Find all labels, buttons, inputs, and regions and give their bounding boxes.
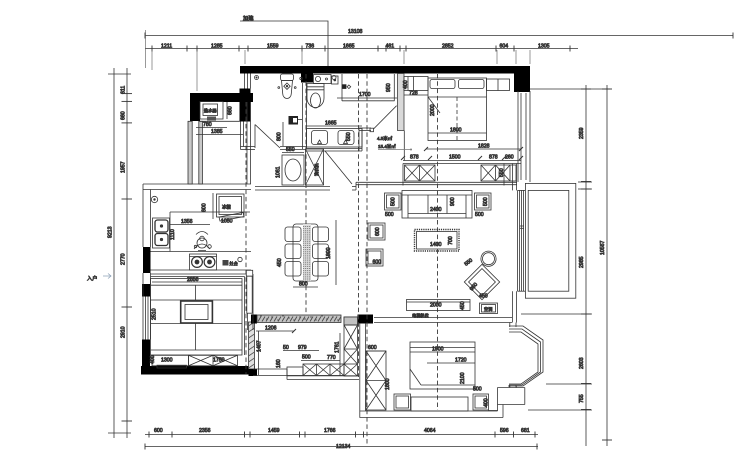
svg-text:1750: 1750 [213, 358, 225, 364]
svg-text:1500: 1500 [449, 155, 461, 161]
svg-text:洗衣机: 洗衣机 [313, 163, 320, 176]
svg-text:1800: 1800 [385, 378, 391, 390]
svg-text:2910: 2910 [121, 326, 127, 338]
svg-text:600: 600 [154, 428, 163, 434]
svg-text:1300: 1300 [161, 358, 173, 364]
svg-text:800: 800 [299, 282, 308, 288]
svg-text:2100: 2100 [460, 372, 466, 384]
svg-text:500: 500 [391, 197, 397, 206]
svg-text:1665: 1665 [343, 44, 355, 50]
svg-text:728: 728 [409, 91, 418, 97]
svg-text:700: 700 [448, 236, 454, 245]
svg-text:1400: 1400 [430, 242, 442, 248]
svg-text:冰箱: 冰箱 [222, 204, 231, 211]
svg-text:600: 600 [373, 260, 382, 266]
svg-text:1559: 1559 [267, 44, 279, 50]
svg-text:500: 500 [385, 212, 394, 218]
svg-text:1828: 1828 [478, 144, 490, 150]
svg-text:电视机位: 电视机位 [412, 312, 429, 319]
svg-text:500: 500 [302, 355, 311, 361]
svg-text:2000: 2000 [430, 104, 436, 116]
svg-text:2000: 2000 [430, 303, 442, 309]
svg-text:热水器: 热水器 [204, 107, 217, 114]
svg-text:2770: 2770 [121, 253, 127, 265]
svg-text:15.4米㎡: 15.4米㎡ [378, 143, 396, 150]
svg-text:800: 800 [277, 132, 283, 141]
svg-text:1957: 1957 [121, 161, 127, 173]
svg-text:1766: 1766 [324, 428, 336, 434]
svg-text:1800: 1800 [450, 128, 462, 134]
svg-text:736: 736 [306, 44, 315, 50]
svg-text:550: 550 [499, 168, 505, 177]
svg-text:1720: 1720 [455, 358, 467, 364]
svg-text:500: 500 [473, 387, 482, 393]
svg-text:灶台: 灶台 [230, 260, 238, 267]
svg-text:260: 260 [505, 155, 514, 161]
svg-text:600: 600 [368, 345, 377, 351]
svg-text:4.5米㎡: 4.5米㎡ [377, 135, 393, 142]
svg-text:770: 770 [327, 355, 336, 361]
svg-text:50: 50 [283, 345, 289, 351]
svg-text:1900: 1900 [432, 347, 444, 353]
svg-text:979: 979 [298, 345, 307, 351]
svg-text:600: 600 [375, 227, 381, 236]
svg-text:461: 461 [386, 44, 395, 50]
svg-text:450: 450 [479, 294, 488, 300]
svg-text:1459: 1459 [268, 428, 280, 434]
svg-text:1407: 1407 [257, 340, 263, 352]
svg-text:入户: 入户 [87, 274, 97, 282]
svg-text:611: 611 [121, 86, 127, 94]
svg-text:1356: 1356 [181, 219, 193, 225]
svg-text:4064: 4064 [424, 428, 436, 434]
svg-text:878: 878 [410, 155, 419, 161]
svg-text:10567: 10567 [600, 240, 606, 255]
svg-text:604: 604 [500, 44, 509, 50]
svg-text:1665: 1665 [325, 121, 337, 127]
svg-text:1305: 1305 [538, 44, 550, 50]
svg-text:1211: 1211 [161, 44, 172, 50]
svg-text:2356: 2356 [199, 428, 211, 434]
svg-text:1385: 1385 [211, 129, 223, 135]
svg-text:2400: 2400 [430, 207, 442, 213]
svg-text:2852: 2852 [442, 44, 454, 50]
svg-text:550: 550 [286, 147, 295, 153]
svg-text:400: 400 [484, 398, 490, 407]
svg-text:660: 660 [228, 106, 234, 115]
svg-text:900: 900 [450, 197, 456, 206]
svg-text:550: 550 [346, 132, 352, 141]
svg-text:1061: 1061 [276, 166, 282, 178]
svg-text:2856: 2856 [187, 277, 199, 283]
svg-text:2603: 2603 [579, 357, 585, 369]
svg-text:755: 755 [579, 394, 585, 403]
svg-text:450: 450 [277, 258, 283, 267]
svg-text:13108: 13108 [348, 29, 363, 35]
svg-text:2510: 2510 [152, 308, 158, 320]
svg-text:450: 450 [460, 301, 466, 310]
svg-text:12134: 12134 [336, 444, 351, 450]
svg-text:500: 500 [475, 212, 484, 218]
svg-text:780: 780 [203, 122, 212, 128]
svg-text:1800: 1800 [326, 247, 332, 259]
svg-text:1700: 1700 [359, 92, 371, 98]
svg-text:1761: 1761 [335, 341, 341, 353]
svg-text:2985: 2985 [579, 256, 585, 268]
svg-text:1050: 1050 [221, 219, 233, 225]
svg-text:1110: 1110 [170, 229, 176, 240]
svg-text:1206: 1206 [265, 326, 277, 332]
svg-text:9213: 9213 [108, 226, 114, 238]
svg-text:加建: 加建 [243, 14, 253, 22]
svg-text:1285: 1285 [211, 44, 223, 50]
svg-text:660: 660 [121, 111, 127, 120]
svg-text:950: 950 [386, 83, 392, 92]
svg-text:400: 400 [403, 80, 409, 89]
svg-text:878: 878 [489, 155, 498, 161]
svg-text:空调: 空调 [484, 306, 492, 313]
svg-text:500: 500 [483, 197, 489, 206]
svg-text:400: 400 [150, 355, 156, 364]
svg-text:2359: 2359 [579, 127, 585, 139]
svg-text:596: 596 [500, 428, 509, 434]
svg-text:600: 600 [202, 203, 208, 212]
svg-text:681: 681 [521, 428, 530, 434]
svg-text:160: 160 [276, 359, 282, 368]
